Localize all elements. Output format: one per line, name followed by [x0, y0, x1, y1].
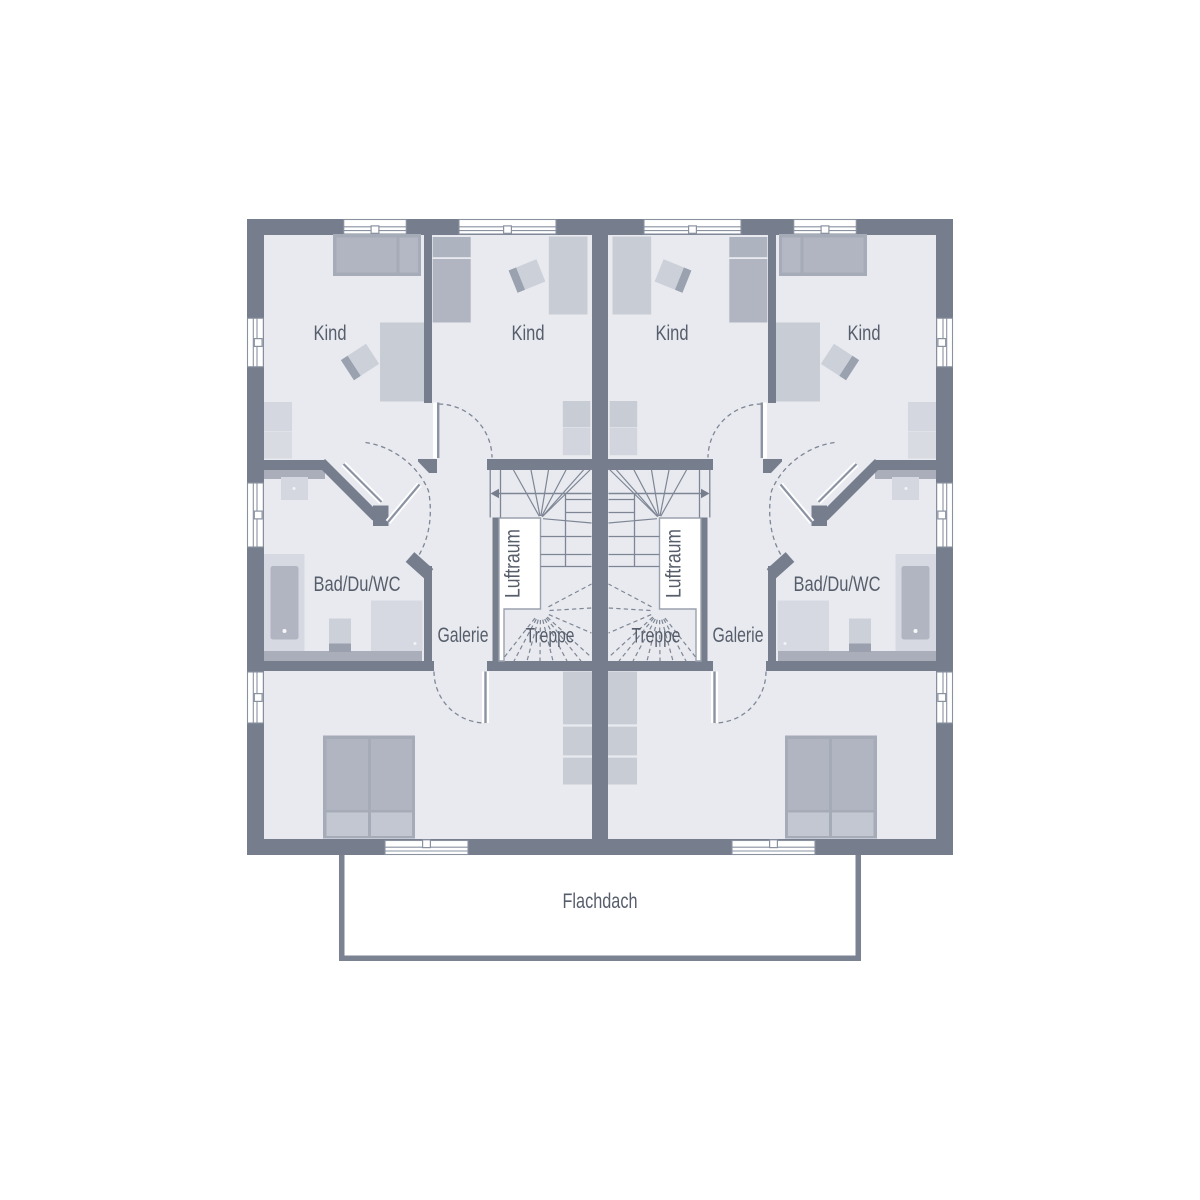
svg-text:Flachdach: Flachdach — [563, 890, 638, 913]
svg-text:Treppe: Treppe — [526, 625, 575, 648]
svg-text:Bad/Du/WC: Bad/Du/WC — [314, 573, 401, 596]
svg-text:Kind: Kind — [512, 322, 545, 345]
svg-text:Galerie: Galerie — [438, 624, 489, 647]
svg-text:Kind: Kind — [656, 322, 689, 345]
svg-text:Bad/Du/WC: Bad/Du/WC — [794, 573, 881, 596]
svg-text:Galerie: Galerie — [713, 624, 764, 647]
svg-text:Luftraum: Luftraum — [502, 529, 525, 598]
svg-text:Kind: Kind — [848, 322, 881, 345]
svg-text:Luftraum: Luftraum — [663, 529, 686, 598]
svg-text:Kind: Kind — [314, 322, 347, 345]
svg-text:Treppe: Treppe — [632, 625, 681, 648]
